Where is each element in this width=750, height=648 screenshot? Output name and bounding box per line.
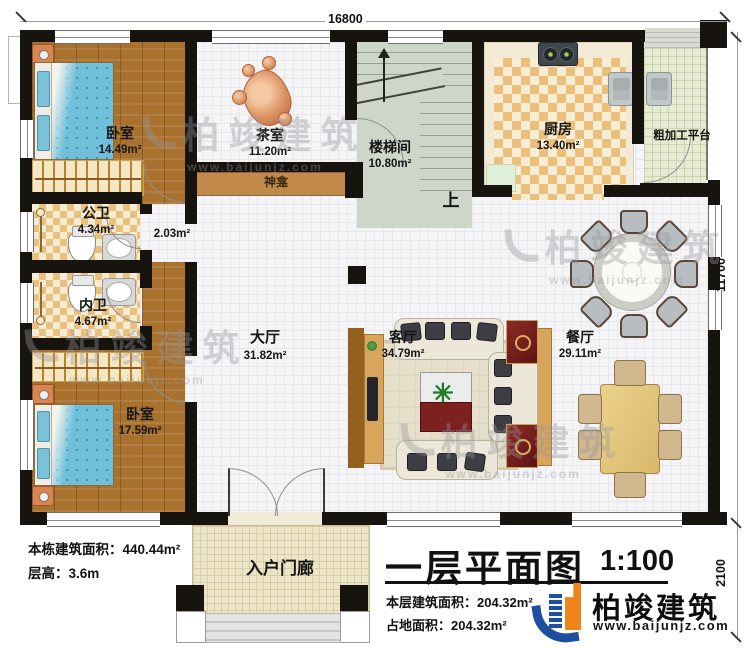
window [47, 512, 160, 527]
bed-headboard [35, 405, 52, 485]
wall-segment [160, 512, 228, 525]
wall-segment [185, 402, 197, 512]
room-area-private-bath: 4.67m² [56, 316, 130, 329]
bed-symbol [34, 404, 114, 486]
sofa-cushion [437, 453, 457, 471]
chair-symbol [658, 394, 682, 424]
pillar-footing [176, 611, 206, 643]
stove-burner [543, 47, 558, 62]
table-center-decor [622, 262, 642, 282]
note-footprint-area: 占地面积：204.32m² [386, 615, 507, 634]
window [20, 212, 34, 252]
room-label-dining: 餐厅 [543, 330, 617, 345]
nightstand-symbol [32, 384, 54, 404]
tea-table-dot [242, 64, 255, 77]
shower-knob [36, 208, 45, 217]
red-mat-symbol [506, 424, 538, 468]
chair-symbol [570, 260, 594, 288]
wall-segment [140, 204, 152, 214]
window [572, 512, 682, 527]
room-label-kitchen: 厨房 [520, 122, 596, 137]
room-label-hall: 大厅 [228, 330, 302, 347]
wall-segment [443, 30, 645, 42]
wall-segment [195, 162, 345, 172]
room-area-stair: 10.80m² [352, 158, 428, 171]
tea-table-dot [262, 56, 276, 70]
dimension-line-right [737, 32, 738, 640]
room-area-kitchen: 13.40m² [520, 140, 596, 153]
floor-kitchen-opening [512, 185, 604, 200]
room-label-porch: 入户门廊 [224, 560, 336, 579]
logo-blue-tower [549, 592, 562, 628]
room-area-living: 34.79m² [366, 348, 440, 361]
platform-sink-symbol [646, 72, 672, 106]
room-area-tea: 11.20m² [235, 146, 305, 159]
chair-symbol [578, 430, 602, 460]
dimension-label-right: 11700 [714, 244, 728, 306]
wall-segment [20, 192, 142, 204]
porch-steps [204, 613, 344, 643]
pillow [37, 448, 50, 479]
stove-burner [559, 47, 574, 62]
wall-segment [20, 338, 152, 350]
tea-table-dot [278, 112, 292, 126]
wall-segment [185, 262, 197, 356]
wall-segment [20, 30, 32, 120]
wall-segment [185, 42, 197, 203]
shower-knob [36, 316, 45, 325]
wall-segment [640, 183, 720, 197]
room-label-shrine: 神龛 [240, 176, 312, 189]
wall-segment [140, 326, 152, 350]
chair-symbol [620, 210, 648, 234]
nightstand-symbol [32, 44, 54, 64]
stair-direction-arrow [383, 56, 385, 102]
room-area-bedroom1: 14.49m² [83, 144, 157, 157]
logo-orange-tower [565, 583, 581, 630]
kitchen-sink-symbol [608, 72, 634, 106]
chair-symbol [674, 260, 698, 288]
chair-symbol [578, 394, 602, 424]
window [20, 283, 34, 323]
red-mat-symbol [506, 320, 538, 364]
sofa-cushion [476, 322, 498, 342]
wall-segment [185, 203, 197, 224]
tea-table-art [232, 56, 302, 132]
porch-pillar [340, 585, 368, 611]
wall-segment [604, 185, 640, 197]
title-underline [385, 581, 668, 584]
pillow [37, 115, 50, 152]
pillow [37, 411, 50, 442]
platform-edge [706, 48, 708, 180]
rect-dining-table [600, 384, 660, 474]
stair-arrow-head [378, 48, 390, 58]
wall-segment [130, 30, 212, 42]
window [20, 400, 34, 470]
room-label-platform: 粗加工平台 [644, 130, 720, 143]
room-label-bedroom1: 卧室 [83, 126, 157, 141]
tv-wall-panel [348, 328, 364, 468]
room-area-hall: 31.82m² [228, 350, 302, 363]
window [388, 30, 443, 44]
wardrobe-symbol [32, 352, 144, 382]
room-label-stair: 楼梯间 [352, 140, 428, 155]
room-area-bedroom2: 17.59m² [103, 425, 177, 438]
wardrobe-symbol [32, 160, 144, 196]
pillar-footing [340, 611, 370, 643]
shower-rail [40, 212, 42, 252]
window [212, 30, 330, 44]
room-label-living: 客厅 [366, 330, 440, 345]
room-label-public-bath: 公卫 [59, 206, 133, 221]
structural-column [348, 266, 366, 284]
wall-segment [330, 30, 388, 42]
dimension-tick [730, 31, 741, 42]
porch-pillar [176, 585, 204, 611]
wall-segment [472, 185, 512, 197]
wall-corner [700, 20, 727, 48]
brand-logo-icon [534, 583, 584, 635]
wall-segment [20, 512, 47, 525]
wall-segment [682, 512, 727, 525]
sofa-cushion [464, 452, 486, 473]
coffee-table-symbol: ✳ [420, 372, 470, 430]
note-building-area: 本栋建筑面积：440.44m² [28, 538, 180, 558]
dimension-line-top [20, 21, 727, 22]
note-floor-area: 本层建筑面积：204.32m² [386, 592, 533, 611]
chair-symbol [614, 360, 646, 386]
wall-segment [345, 42, 357, 120]
wall-segment [708, 330, 720, 512]
room-area-passage: 2.03m² [135, 228, 209, 241]
pillow [37, 71, 50, 108]
dimension-tick [730, 517, 741, 528]
wall-segment [140, 250, 152, 288]
bed-headboard [35, 63, 52, 159]
shower-rail [40, 282, 42, 320]
platform-eave-strip [645, 28, 700, 48]
wall-segment [632, 42, 644, 144]
chair-symbol [620, 314, 648, 338]
wall-segment [500, 512, 572, 525]
sofa-symbol [396, 440, 498, 480]
sofa-cushion [494, 387, 512, 405]
chair-symbol [658, 430, 682, 460]
room-label-tea: 茶室 [235, 128, 305, 143]
nightstand-symbol [32, 486, 54, 506]
stair-up-label: 上 [438, 192, 464, 211]
dimension-label-top: 16800 [325, 12, 366, 26]
room-area-dining: 29.11m² [543, 348, 617, 361]
window [20, 120, 34, 158]
tv-symbol [367, 377, 378, 421]
dimension-label-right-lower: 2100 [714, 544, 728, 602]
window [55, 30, 130, 44]
dimension-tick [730, 631, 741, 642]
chair-symbol [614, 472, 646, 498]
room-label-private-bath: 内卫 [56, 298, 130, 313]
brand-url: www.baijunjz.com [593, 618, 729, 633]
room-label-bedroom2: 卧室 [103, 407, 177, 422]
wall-segment [20, 260, 152, 273]
tea-table-dot [232, 90, 247, 105]
stove-symbol [538, 42, 578, 66]
floor-plan: 16800 11700 2100 [0, 0, 750, 648]
note-floor-height: 层高：3.6m [28, 562, 99, 582]
wall-segment [472, 42, 484, 197]
window [387, 512, 500, 527]
plant-symbol: ✳ [432, 380, 458, 406]
sofa-cushion [451, 322, 471, 340]
wall-segment [322, 512, 387, 525]
wall-segment [20, 323, 32, 400]
room-area-public-bath: 4.34m² [59, 224, 133, 237]
plan-scale: 1:100 [600, 545, 674, 578]
sofa-cushion [407, 453, 427, 471]
